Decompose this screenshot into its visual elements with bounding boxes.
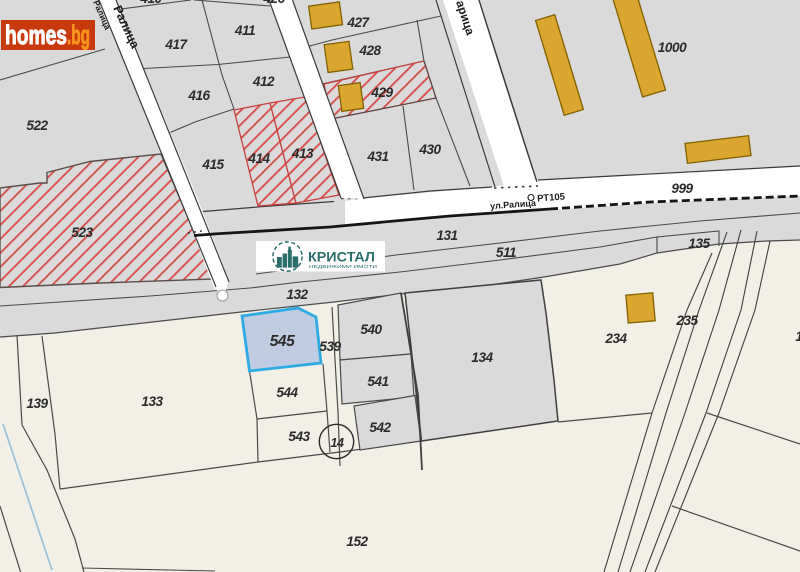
svg-text:131: 131 — [436, 228, 457, 243]
svg-text:.bg: .bg — [67, 20, 90, 50]
svg-text:133: 133 — [141, 394, 163, 409]
svg-text:134: 134 — [471, 350, 493, 365]
svg-text:416: 416 — [187, 88, 210, 103]
svg-text:414: 414 — [247, 151, 270, 166]
svg-text:522: 522 — [26, 118, 48, 133]
svg-text:411: 411 — [234, 23, 255, 38]
svg-text:523: 523 — [71, 225, 93, 240]
svg-text:430: 430 — [418, 142, 441, 157]
svg-text:139: 139 — [26, 396, 48, 411]
svg-text:14: 14 — [330, 436, 344, 450]
svg-text:999: 999 — [671, 181, 693, 196]
svg-text:135: 135 — [688, 236, 710, 251]
svg-text:539: 539 — [319, 339, 341, 354]
svg-text:410: 410 — [139, 0, 162, 6]
svg-text:РТ105: РТ105 — [537, 191, 566, 204]
svg-text:234: 234 — [604, 331, 627, 346]
svg-text:544: 544 — [276, 385, 298, 400]
svg-text:homes: homes — [5, 20, 67, 50]
svg-text:541: 541 — [367, 374, 388, 389]
svg-text:417: 417 — [164, 37, 188, 52]
svg-text:511: 511 — [496, 245, 516, 260]
svg-text:427: 427 — [346, 15, 370, 30]
svg-text:КРИСТАЛ: КРИСТАЛ — [308, 250, 375, 265]
svg-text:540: 540 — [360, 322, 382, 337]
svg-text:545: 545 — [270, 333, 295, 350]
svg-text:136: 136 — [795, 329, 800, 344]
svg-text:НЕДВИЖИМИ ИМОТИ: НЕДВИЖИМИ ИМОТИ — [309, 264, 377, 269]
svg-text:542: 542 — [369, 420, 391, 435]
svg-text:1000: 1000 — [658, 40, 687, 55]
svg-text:412: 412 — [252, 74, 275, 89]
svg-text:543: 543 — [288, 429, 310, 444]
svg-text:152: 152 — [346, 534, 368, 549]
svg-text:426: 426 — [262, 0, 285, 6]
svg-text:431: 431 — [366, 149, 388, 164]
svg-text:235: 235 — [675, 313, 698, 328]
svg-text:428: 428 — [358, 43, 381, 58]
svg-text:132: 132 — [286, 287, 308, 302]
svg-text:415: 415 — [201, 157, 224, 172]
svg-text:413: 413 — [291, 146, 314, 161]
svg-text:429: 429 — [370, 85, 393, 100]
